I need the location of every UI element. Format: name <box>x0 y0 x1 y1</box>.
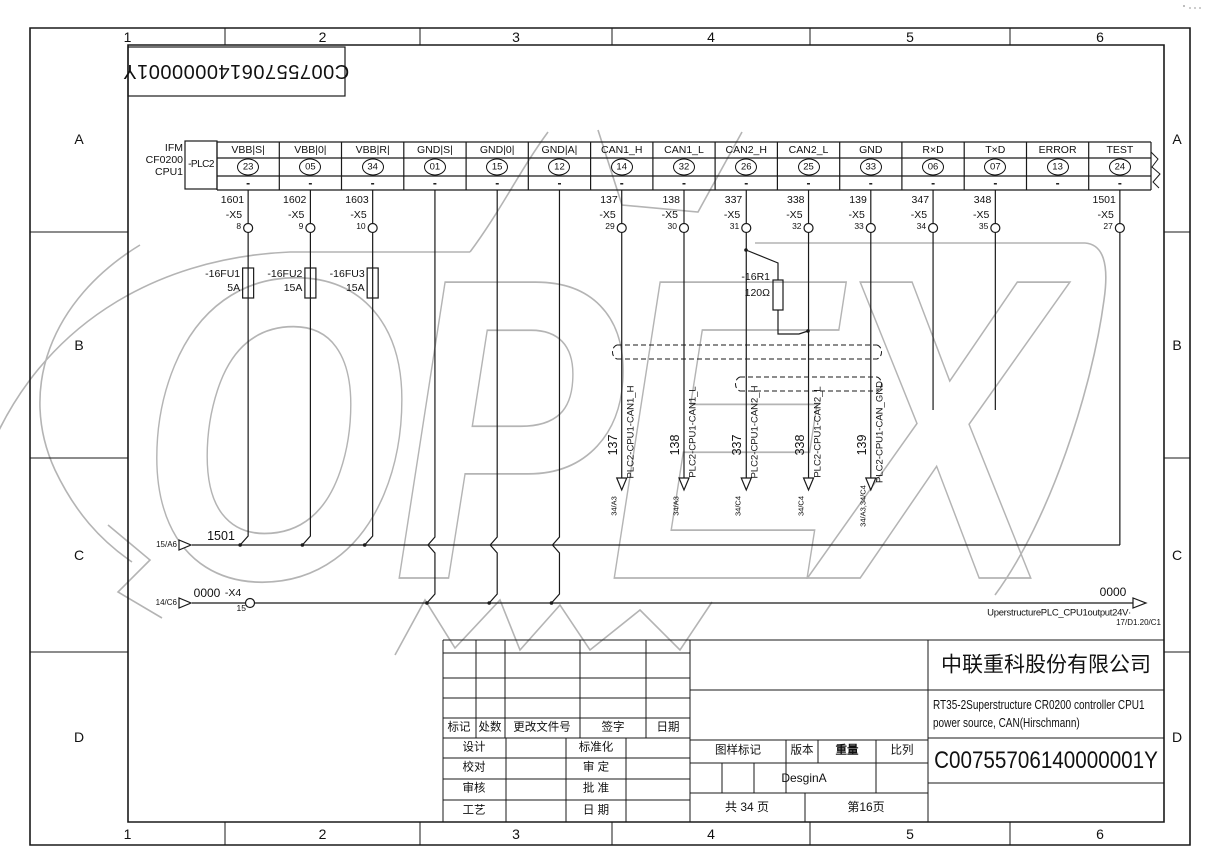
cross-reference: 34/A3 <box>610 496 618 516</box>
drawing-title-line1: RT35-2Superstructure CR0200 controller C… <box>933 699 1145 712</box>
grid-row-label-right: C <box>1172 548 1182 562</box>
connector-pin: 27 <box>1103 222 1112 231</box>
bus0000-dest-ref: 17/D1.20/C1 <box>1116 619 1161 627</box>
terminal-dash: - <box>308 177 312 189</box>
terminal-dash: - <box>495 177 499 189</box>
grid-col-label-bottom: 5 <box>906 827 914 841</box>
terminal-label: GND <box>859 145 882 156</box>
wire-number: 1602 <box>283 195 306 206</box>
connector-pin: 10 <box>356 222 365 231</box>
x4-connector-tag: -X4 <box>225 588 241 599</box>
connector-pin: 30 <box>668 222 677 231</box>
bus0000-source-ref: 14/C6 <box>156 599 177 607</box>
role-process: 工艺 <box>463 805 486 817</box>
wire-number: 139 <box>849 195 867 206</box>
cross-reference: 34/A3 <box>672 496 680 516</box>
connector-tag: -X5 <box>599 210 615 221</box>
role-review: 审 定 <box>583 762 609 774</box>
connector-pin: 29 <box>605 222 614 231</box>
terminal-label: ERROR <box>1039 145 1077 156</box>
grid-col-label-top: 2 <box>319 30 327 44</box>
connector-tag: -X5 <box>786 210 802 221</box>
connector-tag: -X5 <box>226 210 242 221</box>
grid-row-label-right: A <box>1172 132 1181 146</box>
terminal-pin-circle: 14 <box>611 159 633 176</box>
wire-number: 1603 <box>345 195 368 206</box>
terminal-dash: - <box>993 177 997 189</box>
stamp-header-weight: 重量 <box>836 745 859 757</box>
grid-row-label-left: D <box>74 730 84 744</box>
terminal-label: VBB|S| <box>231 145 264 156</box>
signal-name: PLC2-CPU1-CAN2_L <box>813 386 823 477</box>
grid-col-label-top: 1 <box>124 30 132 44</box>
wire-number: 1501 <box>1093 195 1116 206</box>
wire-number-vertical: 338 <box>793 435 806 456</box>
terminal-pin-circle: 06 <box>922 159 944 176</box>
terminal-dash: - <box>371 177 375 189</box>
terminal-pin-circle: 13 <box>1047 159 1069 176</box>
connector-tag: -X5 <box>848 210 864 221</box>
grid-col-label-bottom: 6 <box>1096 827 1104 841</box>
terminal-label: VBB|0| <box>294 145 326 156</box>
pages-total: 共 34 页 <box>725 801 769 813</box>
terminal-pin-circle: 33 <box>860 159 882 176</box>
terminal-pin-circle: 23 <box>237 159 259 176</box>
role-standardization: 标准化 <box>579 742 614 754</box>
signal-name: PLC2-CPU1-CAN1_L <box>688 386 698 477</box>
page-current: 第16页 <box>847 801 884 813</box>
wire-number: 1601 <box>221 195 244 206</box>
grid-col-label-top: 3 <box>512 30 520 44</box>
terminal-dash: - <box>869 177 873 189</box>
plc-device-line: CF0200 <box>146 155 183 166</box>
connector-pin: 9 <box>299 222 304 231</box>
grid-col-label-top: 5 <box>906 30 914 44</box>
role-proofread: 校对 <box>463 762 486 774</box>
schematic-page: OPEX <box>0 0 1218 865</box>
fuse-tag: -16FU2 <box>267 269 302 280</box>
terminal-pin-circle: 05 <box>299 159 321 176</box>
terminal-label: GND|S| <box>417 145 453 156</box>
role-audit: 审核 <box>463 783 486 795</box>
stamp-header-scale: 比列 <box>891 745 914 757</box>
wire-number: 348 <box>974 195 992 206</box>
connector-tag: -X5 <box>662 210 678 221</box>
grid-col-label-top: 6 <box>1096 30 1104 44</box>
bus0000-dest-name: UperstructurePLC_CPU1output24V· <box>987 608 1131 618</box>
connector-tag: -X5 <box>724 210 740 221</box>
role-design: 设计 <box>463 742 486 754</box>
terminal-label: GND|A| <box>542 145 578 156</box>
terminal-label: T×D <box>985 145 1005 156</box>
connector-pin: 33 <box>854 222 863 231</box>
bus1501-label: 1501 <box>207 530 235 543</box>
resistor-value: 120Ω <box>745 288 770 299</box>
bus0000-label: 0000 <box>194 587 221 599</box>
grid-col-label-bottom: 3 <box>512 827 520 841</box>
fuse-tag: -16FU3 <box>330 269 365 280</box>
terminal-label: CAN1_H <box>601 145 642 156</box>
cross-reference: 34/C4 <box>797 496 805 516</box>
terminal-label: CAN2_H <box>726 145 767 156</box>
connector-tag: -X5 <box>973 210 989 221</box>
wire-number-vertical: 139 <box>856 435 869 456</box>
grid-col-label-top: 4 <box>707 30 715 44</box>
terminal-pin-circle: 12 <box>548 159 570 176</box>
terminal-pin-circle: 25 <box>798 159 820 176</box>
wire-number: 337 <box>725 195 743 206</box>
wire-number: 338 <box>787 195 805 206</box>
grid-col-label-bottom: 4 <box>707 827 715 841</box>
terminal-label: CAN2_L <box>789 145 829 156</box>
terminal-label: VBB|R| <box>356 145 390 156</box>
x4-pin: 15 <box>237 604 246 613</box>
terminal-pin-circle: 32 <box>673 159 695 176</box>
grid-row-label-right: B <box>1172 338 1181 352</box>
wire-number-vertical: 137 <box>606 435 619 456</box>
version-value: DesginA <box>781 772 826 784</box>
connector-tag: -X5 <box>350 210 366 221</box>
terminal-pin-circle: 15 <box>486 159 508 176</box>
terminal-dash: - <box>620 177 624 189</box>
terminal-dash: - <box>433 177 437 189</box>
grid-row-label-left: C <box>74 548 84 562</box>
plc-tag: -PLC2 <box>188 160 214 170</box>
wire-number-vertical: 138 <box>669 435 682 456</box>
grid-row-label-right: D <box>1172 730 1182 744</box>
wire-number: 137 <box>600 195 618 206</box>
grid-row-label-left: A <box>74 132 83 146</box>
rev-header-change-doc: 更改文件号 <box>513 722 571 734</box>
stamp-header-mark: 图样标记 <box>715 745 761 757</box>
stamp-header-version: 版本 <box>791 745 814 757</box>
terminal-pin-circle: 01 <box>424 159 446 176</box>
fuse-tag: -16FU1 <box>205 269 240 280</box>
terminal-dash: - <box>807 177 811 189</box>
connector-pin: 8 <box>236 222 241 231</box>
wire-number: 347 <box>912 195 930 206</box>
terminal-pin-circle: 07 <box>984 159 1006 176</box>
rev-header-signature: 签字 <box>602 722 625 734</box>
connector-pin: 35 <box>979 222 988 231</box>
connector-tag: -X5 <box>288 210 304 221</box>
cross-reference: 34/A3,34/C4 <box>859 485 867 527</box>
company-name: 中联重科股份有限公司 <box>941 655 1151 676</box>
terminal-label: R×D <box>922 145 943 156</box>
rev-header-count: 处数 <box>479 722 502 734</box>
rotated-drawing-code: C00755706140000001Y <box>123 61 349 81</box>
terminal-dash: - <box>682 177 686 189</box>
terminal-dash: - <box>744 177 748 189</box>
drawing-number: C00755706140000001Y <box>934 749 1158 773</box>
signal-name: PLC2-CPU1-CAN1_H <box>626 386 636 479</box>
connector-tag: -X5 <box>1098 210 1114 221</box>
role-approve: 批 准 <box>583 783 609 795</box>
rev-header-date: 日期 <box>657 722 680 734</box>
connector-tag: -X5 <box>911 210 927 221</box>
connector-pin: 34 <box>917 222 926 231</box>
rev-header-mark: 标记 <box>448 722 471 734</box>
terminal-label: TEST <box>1106 145 1133 156</box>
plc-device-line: CPU1 <box>155 167 183 178</box>
terminal-label: GND|0| <box>480 145 515 156</box>
grid-col-label-bottom: 2 <box>319 827 327 841</box>
plc-device-line: IFM <box>165 143 183 154</box>
terminal-dash: - <box>1056 177 1060 189</box>
bus1501-source-ref: 15/A6 <box>156 541 177 549</box>
terminal-pin-circle: 34 <box>362 159 384 176</box>
grid-row-label-left: B <box>74 338 83 352</box>
terminal-label: CAN1_L <box>664 145 704 156</box>
connector-pin: 32 <box>792 222 801 231</box>
drawing-title-line2: power source, CAN(Hirschmann) <box>933 717 1080 730</box>
terminal-dash: - <box>557 177 561 189</box>
bus0000-dest-label: 0000 <box>1100 586 1127 598</box>
wire-number-vertical: 337 <box>731 435 744 456</box>
signal-name: PLC2-CPU1-CAN2_H <box>751 386 761 479</box>
signal-name: PLC2-CPU1-CAN_GND <box>875 381 885 483</box>
wire-number: 138 <box>662 195 680 206</box>
terminal-dash: - <box>246 177 250 189</box>
fuse-rating: 15A <box>346 283 365 294</box>
connector-pin: 31 <box>730 222 739 231</box>
fuse-rating: 5A <box>227 283 240 294</box>
fuse-rating: 15A <box>284 283 303 294</box>
terminal-pin-circle: 24 <box>1109 159 1131 176</box>
terminal-pin-circle: 26 <box>735 159 757 176</box>
cross-reference: 34/C4 <box>735 496 743 516</box>
resistor-tag: -16R1 <box>741 272 770 283</box>
labels-layer: C00755706140000001Y 中联重科股份有限公司 RT35-2Sup… <box>0 0 1218 865</box>
role-date: 日 期 <box>583 805 609 817</box>
terminal-dash: - <box>931 177 935 189</box>
terminal-dash: - <box>1118 177 1122 189</box>
grid-col-label-bottom: 1 <box>124 827 132 841</box>
